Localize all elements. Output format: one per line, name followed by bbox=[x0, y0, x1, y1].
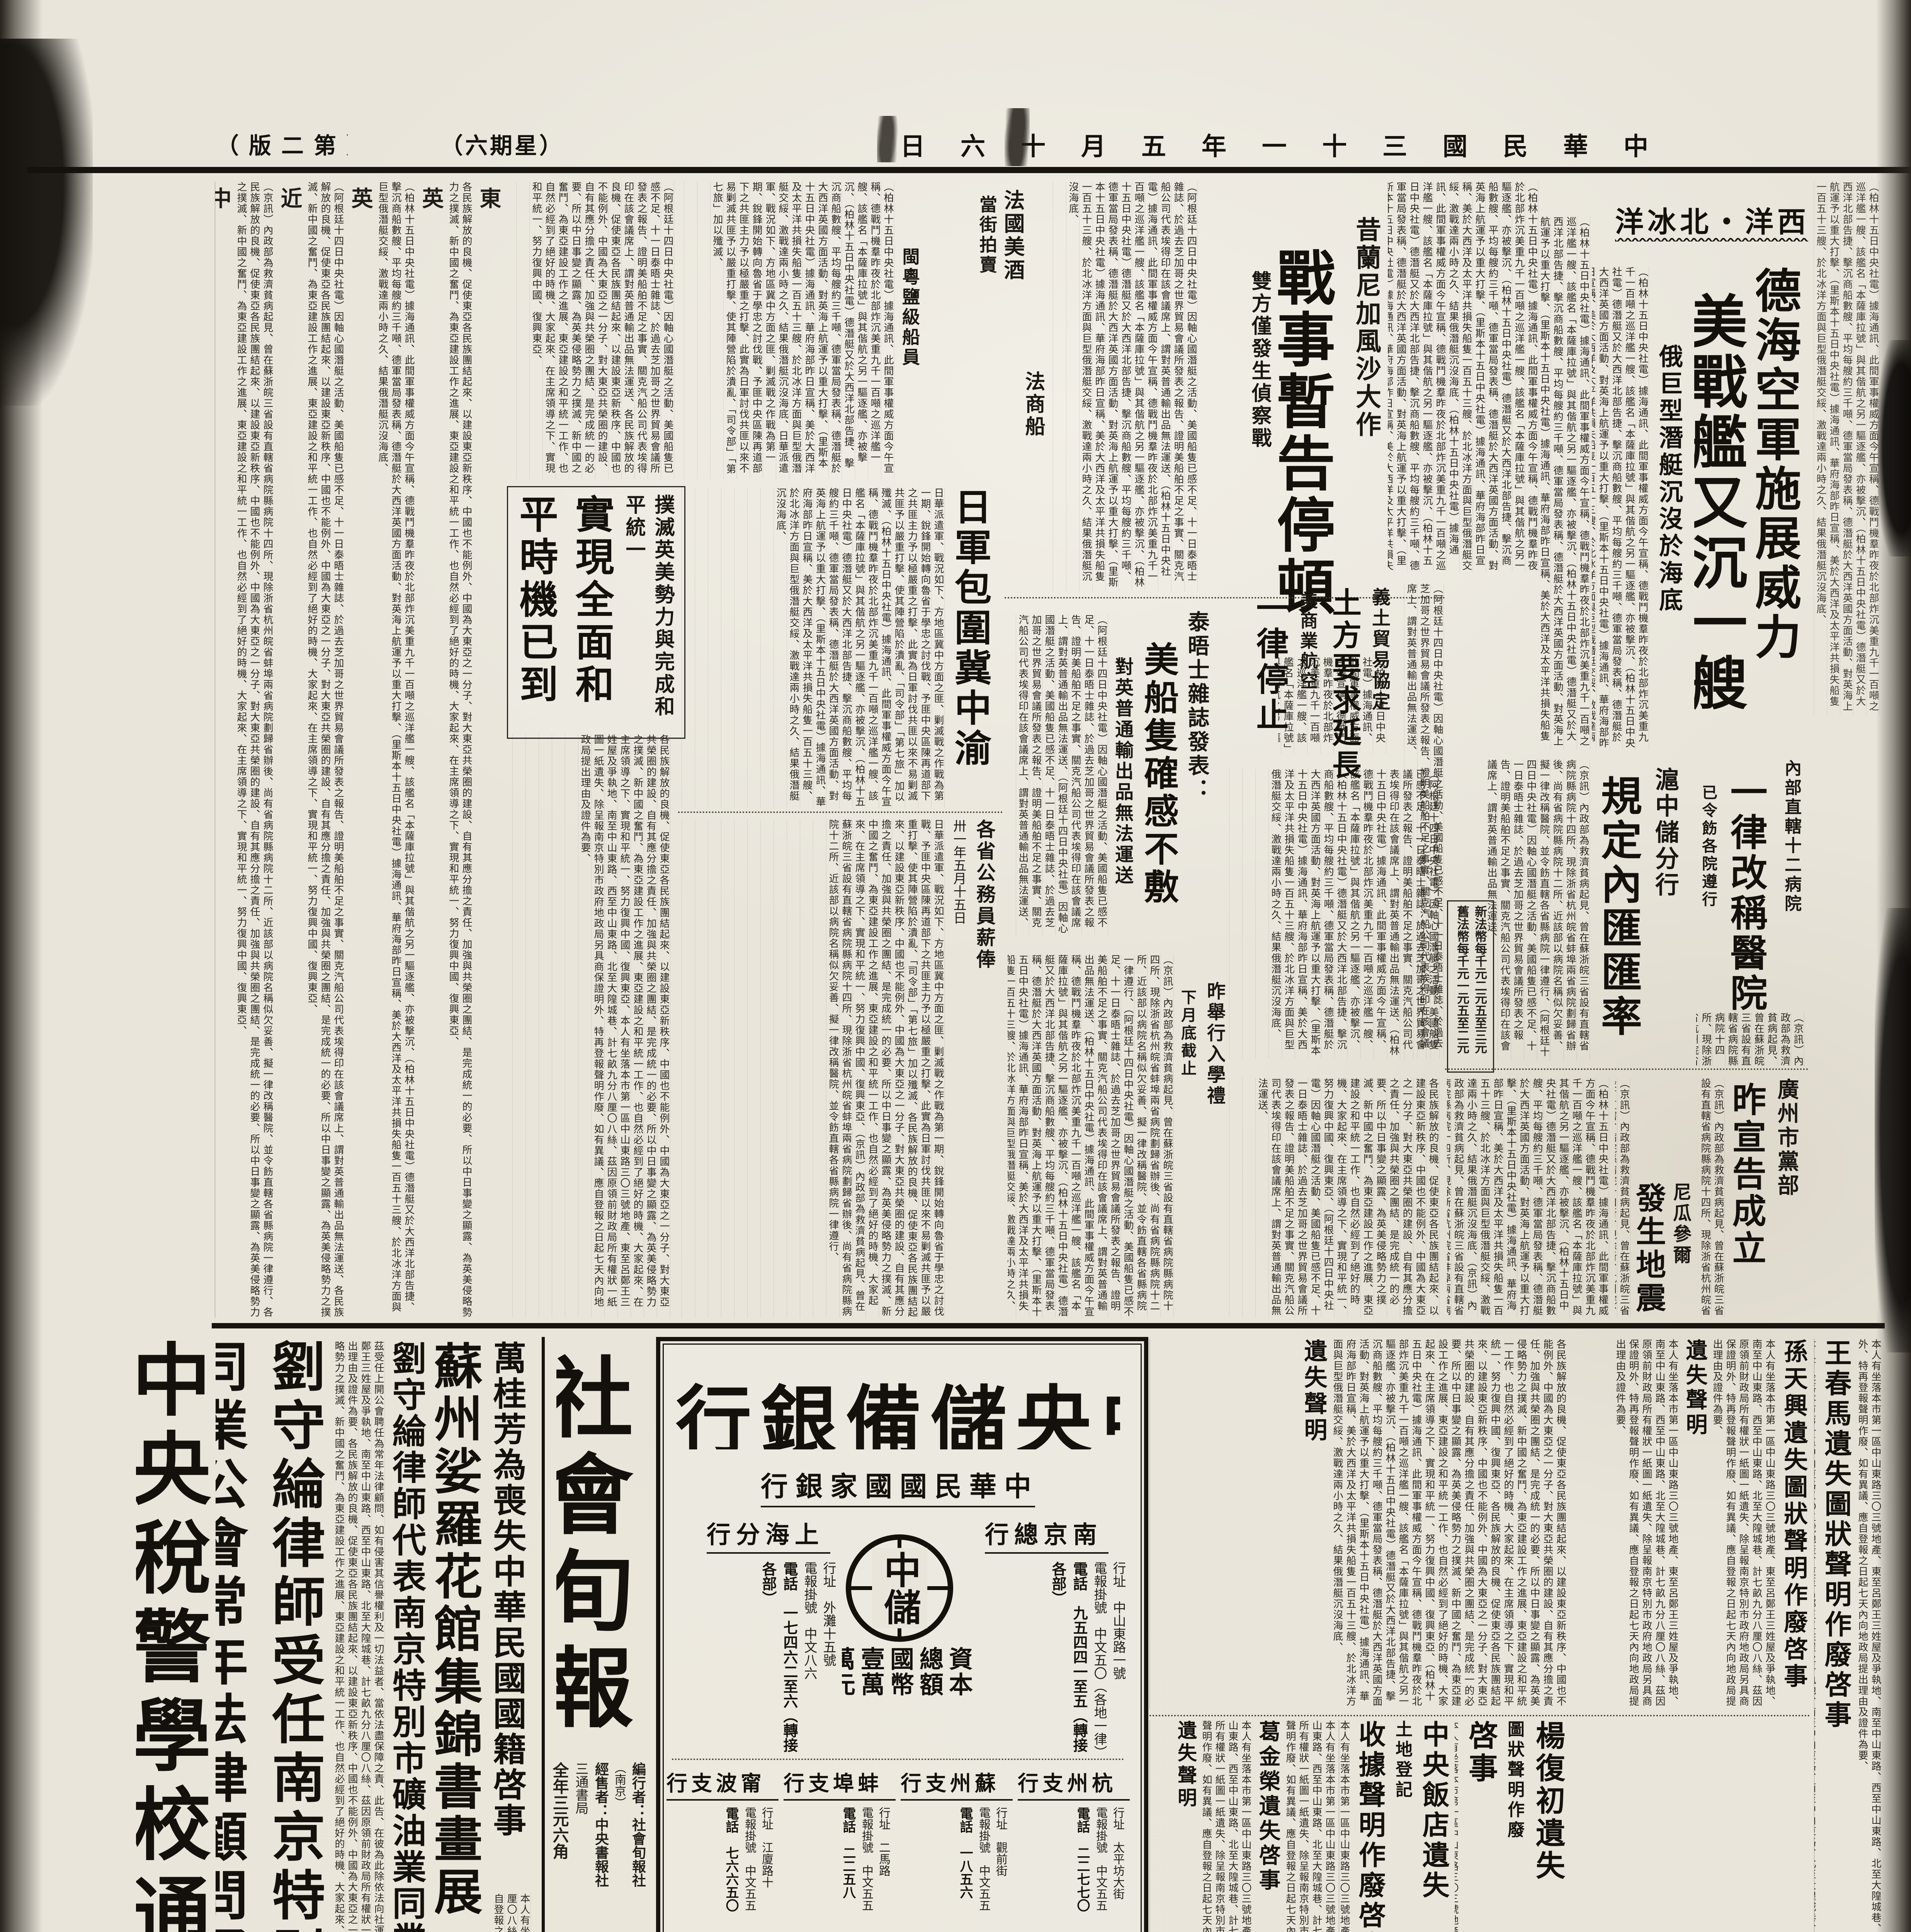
scan-edge-left bbox=[0, 0, 43, 1932]
article-remit-body: （京訊）內政部為救濟貧病起見、曾在蘇浙皖三省設有直轄省病院縣病院十四所、現除浙省… bbox=[1486, 759, 1590, 1061]
scan-streak-right bbox=[1875, 908, 1911, 1352]
article-hospital-kicker: 內部直轄十二病院 bbox=[1782, 759, 1804, 1007]
classified-yang-block: 楊復初遺失 圖狀聲明作廢 啓事 本人有坐落本市第一區中山東路三〇三號地產、東至呂… bbox=[1455, 1720, 1569, 1932]
branch-addr: 行址 太平坊大街 bbox=[1109, 1807, 1126, 1932]
ad-wan-guifang-title: 萬桂芳為喪失中華民國國籍啓事 bbox=[492, 1341, 531, 1882]
classified-body: 本人有坐落本市第一區中山東路三〇三號地產、東至呂鄭王三姓屋及爭執地、南至中山東路… bbox=[1856, 1339, 1882, 1932]
news-column: （阿根廷十四日中央社電）因軸心國潛艇之活動、美國船隻已感不足、十一日泰晤士雜誌、… bbox=[1223, 769, 1440, 1059]
bank-branch-suzhou: 行支州蘇 行址 觀前街 電報掛號 中文五五 電話 一八五六 bbox=[901, 1766, 1013, 1932]
mini-date-line: 卅一年五月十五日 bbox=[951, 819, 968, 981]
article-jizhong-headline: 日軍包圍冀中渝軍 bbox=[951, 488, 997, 808]
editorial-peace-headline: 實現全面和平時機已到 bbox=[507, 494, 619, 731]
ad-shehui-imprint: 編行者：社會旬報社 （南京） 經售者：中央書報社 三通書局 全年三元六角 bbox=[551, 1762, 648, 1932]
article-aviation-headline: 一律停止 bbox=[1255, 591, 1294, 753]
ad-shehui-xunbao: 社會旬報 編行者：社會旬報社 （南京） 經售者：中央書報社 三通書局 全年三元六… bbox=[542, 1337, 659, 1932]
bank-sh-cable: 電報掛號 中文八六 bbox=[800, 1561, 819, 1762]
branch-name: 行支埠蚌 bbox=[784, 1766, 896, 1801]
bank-seal-text: 中儲 bbox=[872, 1548, 927, 1628]
ad-suzhou-exhibition-title: 蘇州娑羅花館集錦書畫展 bbox=[435, 1341, 489, 1932]
article-ceasefire-headline: 戰事暫告停頓 bbox=[1278, 247, 1343, 645]
bank-seal-logo: 中儲 bbox=[846, 1534, 953, 1642]
mini-head-auction: 當街拍賣 bbox=[979, 195, 1000, 303]
article-trade-kicker: 義土貿易協定 bbox=[1370, 587, 1393, 753]
edition-label: （版二第） bbox=[216, 128, 348, 162]
scan-blotch-topleft bbox=[0, 39, 93, 406]
editorial-text: （柏林十五日中央社電）據海通訊、此間軍事權威方面今午宣稱、德戰鬥機羣昨夜於北部炸… bbox=[376, 182, 415, 1318]
mini-head-french-ship: 法商船 bbox=[1025, 371, 1048, 464]
classified-right-margin: 本人有坐落本市第一區中山東路三〇三號地產、東至呂鄭王三姓屋及爭執地、南至中山東路… bbox=[1814, 1339, 1882, 1932]
branch-tel: 電話 一八五六 bbox=[956, 1807, 975, 1932]
ad-wan-guifang-body: 本人有坐落本市第一區中山東路三〇三號地產、東至呂鄭王三姓屋及爭執地、南至中山東路… bbox=[492, 1893, 531, 1932]
classified-block: 孫天興遺失圖狀聲明作廢啓事 本人有坐落本市第一區中山東路三〇三號地產、東至呂鄭王… bbox=[1571, 1339, 1811, 1709]
remit-rate-old: 舊法幣每千元一元五至二元 bbox=[1454, 905, 1471, 1068]
ad-tax-police-school-title: 中央稅警學校通告 bbox=[136, 1339, 221, 1932]
ad-shehui-title: 社會旬報 bbox=[556, 1352, 645, 1747]
article-canton-headline: 昨宣告成立 bbox=[1730, 1082, 1771, 1267]
article-hospital-subhead: 已令飭各院遵行 bbox=[1699, 784, 1719, 962]
bank-sh-details: 行址 外灘十五號 電報掛號 中文八六 電話 一七四六二至六（轉接各部） bbox=[668, 1561, 838, 1762]
article-ceasefire-body: （柏林十五日中央社電）據海通訊、此間軍事權威方面今午宣稱、德戰鬥機羣昨夜於北部炸… bbox=[1388, 182, 1539, 572]
section-char: 東 bbox=[473, 182, 504, 1318]
branch-name: 行支波甯 bbox=[666, 1766, 779, 1801]
classified-subhead-yang: 圖狀聲明作廢 bbox=[1502, 1720, 1527, 1932]
ink-stamp bbox=[877, 116, 898, 162]
branch-details: 行址 觀前街 電報掛號 中文五五 電話 一八五六 bbox=[901, 1807, 1009, 1932]
classified-head-lost: 遺失聲明 bbox=[1297, 1339, 1331, 1709]
section-char: 近 bbox=[274, 182, 305, 1318]
essay-continuation-block: 各民族解放的良機、促使東亞各民族團結起來、以建設東亞新秩序、中國也不能例外、中國… bbox=[1149, 1339, 1567, 1709]
classified-head-lost: 遺失聲明 bbox=[1172, 1720, 1200, 1932]
article-times-subhead: 對英普通輸出品無法運送 bbox=[1113, 657, 1136, 896]
ad-shehui-editor2: （南京） bbox=[610, 1762, 627, 1932]
masthead-rule bbox=[27, 167, 1911, 173]
classified-head-lost: 遺失聲明 bbox=[1679, 1339, 1710, 1709]
ad-shehui-seller2: 三通書局 bbox=[571, 1762, 590, 1932]
editorial-text: （阿根廷十四日中央社電）因軸心國潛艇之活動、美國船隻已感不足、十一日泰晤士雜誌、… bbox=[305, 182, 345, 1318]
masthead-date: 日六十月五年一十三國民華中 bbox=[900, 127, 1800, 163]
ink-stamp bbox=[1005, 108, 1030, 166]
ad-liu-representative-title: 劉守綸律師代表南京特別市礦油業同業公會啓事 bbox=[388, 1341, 431, 1932]
classified-body: 本人有坐落本市第一區中山東路三〇三號地產、東至呂鄭王三姓屋及爭執地、南至中山東路… bbox=[1284, 1720, 1336, 1932]
bank-divider bbox=[672, 1759, 1124, 1760]
article-times-kicker: 泰晤士雜誌發表： bbox=[1187, 611, 1212, 850]
classified-head-hotel: 中央飯店遺失 bbox=[1415, 1720, 1454, 1932]
section-divider bbox=[678, 811, 1003, 813]
article-jizhong-body: 日華派遣軍、戰況如下、方地區冀中方面之匪、剿滅戰之作戰為第一期、銳鋒開始轉向魯省… bbox=[678, 488, 945, 808]
branch-name: 行支州蘇 bbox=[901, 1766, 1013, 1801]
classified-block: 本人有坐落本市第一區中山東路三〇三號地產、東至呂鄭王三姓屋及爭執地、南至中山東路… bbox=[1149, 1720, 1336, 1932]
article-ceasefire-kicker: 昔蘭尼加風沙大作 bbox=[1348, 216, 1385, 464]
editorial-peace-kicker: 撲滅英美勢力與完成和平統一 bbox=[619, 494, 677, 731]
bank-subtitle: 行銀家國國民華中 bbox=[761, 1465, 1035, 1507]
article-atlantic-headline2: 美戰艦又沉一艘 bbox=[1694, 292, 1755, 732]
classified-body: 本人有坐落本市第一區中山東路三〇三號地產、東至呂鄭王三姓屋及爭執地、南至中山東路… bbox=[1710, 1339, 1776, 1709]
ad-shehui-editor: 編行者：社會旬報社 bbox=[627, 1762, 648, 1932]
bank-branch-ningbo: 行支波甯 行址 江廈路十 電報掛號 中文五五 電話 七六六五〇 bbox=[666, 1766, 779, 1932]
page-margin-column: （柏林十五日中央社電）據海通訊、此間軍事權威方面今午宣稱、德戰鬥機羣昨夜於北部炸… bbox=[1812, 182, 1880, 715]
classified-body: 本人有坐落本市第一區中山東路三〇三號地產、東至呂鄭王三姓屋及爭執地、南至中山東路… bbox=[1613, 1339, 1679, 1709]
branch-cable: 電報掛號 中文五五 bbox=[858, 1807, 875, 1932]
section-char: 英 bbox=[345, 182, 376, 1318]
classified-body: 本人有坐落本市第一區中山東路三〇三號地產、東至呂鄭王三姓屋及爭執地、南至中山東路… bbox=[1814, 1339, 1817, 1932]
ad-shehui-price: 全年三元六角 bbox=[551, 1762, 571, 1932]
mini-head-ship-crew: 閩粵鹽級船員 bbox=[901, 247, 923, 410]
classified-head-yang-end: 啓事 bbox=[1459, 1720, 1502, 1932]
news-column: （京訊）內政部為救濟貧病起見、曾在蘇浙皖三省設有直轄省病院縣病院十四所、現除浙省… bbox=[1615, 1078, 1630, 1318]
branch-cable: 電報掛號 中文五五 bbox=[975, 1807, 992, 1932]
editorial-text: 各民族解放的良機、促使東亞各民族團結起來、以建設東亞新秩序、中國也不能例外、中國… bbox=[447, 182, 473, 1318]
article-hospital-body: （京訊）內政部為救濟貧病起見、曾在蘇浙皖三省設有直轄省病院縣病院十四所、現除浙省… bbox=[1696, 1012, 1804, 1066]
branch-tel: 電話 二二五八 bbox=[839, 1807, 858, 1932]
editorial-left-strip: 東 各民族解放的良機、促使東亞各民族團結起來、以建設東亞新秩序、中國也不能例外、… bbox=[215, 182, 504, 1318]
bank-branches-row: 行支州杭 行址 太平坊大街 電報掛號 中文五五 電話 二二七七〇 行支州蘇 行址… bbox=[664, 1766, 1134, 1932]
remit-rate-new: 新法幣每千元二元五至三元 bbox=[1471, 905, 1489, 1068]
bank-hq-tel: 電話 九五四四一至五（轉接各部） bbox=[1047, 1561, 1090, 1762]
branch-name: 行支州杭 bbox=[1018, 1766, 1130, 1801]
section-divider bbox=[1445, 1068, 1808, 1070]
branch-addr: 行址 二馬路 bbox=[875, 1807, 892, 1932]
news-column: （阿根廷十四日中央社電）因軸心國潛艇之活動、美國船隻已感不足、十一日泰晤士雜誌、… bbox=[1051, 182, 1198, 591]
branch-cable: 電報掛號 中文五五 bbox=[1092, 1807, 1109, 1932]
bank-branch-bengbu: 行支埠蚌 行址 二馬路 電報掛號 中文五五 電話 二二五八 bbox=[784, 1766, 896, 1932]
classified-head-sun: 孫天興遺失圖狀聲明作廢啓事 bbox=[1776, 1339, 1811, 1709]
news-column: （阿根廷十四日中央社電）因軸心國潛艇之活動、美國船隻已感不足、十一日泰晤士雜誌、… bbox=[508, 182, 674, 479]
classified-body: 本人有坐落本市第一區中山東路三〇三號地產、東至呂鄭王三姓屋及爭執地、南至中山東路… bbox=[1200, 1720, 1252, 1932]
essay-text: 各民族解放的良機、促使東亞各民族團結起來、以建設東亞新秩序、中國也不能例外、中國… bbox=[1331, 1339, 1567, 1709]
branch-details: 行址 二馬路 電報掛號 中文五五 電話 二二五八 bbox=[784, 1807, 892, 1932]
editorial-peace-box: 撲滅英美勢力與完成和平統一 實現全面和平時機已到 許竹園 bbox=[507, 486, 685, 739]
article-canton-kicker: 廣州市黨部 bbox=[1777, 1078, 1802, 1225]
article-atlantic-body: （柏林十五日中央社電）據海通訊、此間軍事權威方面今午宣稱、德戰鬥機羣昨夜於北部炸… bbox=[1541, 216, 1590, 750]
branch-cable: 電報掛號 中文五五 bbox=[741, 1807, 758, 1932]
scan-streak-right bbox=[1878, 340, 1911, 556]
section-char: 英 bbox=[415, 182, 447, 1318]
article-remit-headline: 規定內匯匯率 bbox=[1595, 775, 1647, 1053]
article-atlantic-subhead: 俄巨型潛艇沉沒於海底 bbox=[1651, 344, 1686, 645]
branch-tel: 電話 七六六五〇 bbox=[722, 1807, 741, 1932]
mini-head-french-wine: 法國美酒 bbox=[1004, 189, 1028, 313]
article-atlantic-headline1: 德海空軍施展威力 bbox=[1756, 267, 1807, 692]
article-times-body: （阿根廷十四日中央社電）因軸心國潛艇之活動、美國船隻已感不足、十一日泰晤士雜誌、… bbox=[1008, 614, 1108, 935]
classified-head-ge: 葛金榮遺失啓事 bbox=[1252, 1720, 1284, 1932]
ads-band-rule bbox=[212, 1323, 1885, 1328]
classified-head-hotel-2: 收據聲明作廢啓事 bbox=[1351, 1720, 1390, 1932]
section-divider bbox=[1149, 1715, 1810, 1716]
article-ceasefire-subhead: 雙方僅發生偵察戰 bbox=[1250, 270, 1274, 587]
bank-capital: 資本總額國幣壹萬萬元 bbox=[842, 1646, 973, 1708]
article-remit-kicker: 滬中儲分行 bbox=[1653, 767, 1682, 929]
section-char: 中 bbox=[215, 182, 235, 1318]
classified-head-wang-chunma: 王春馬遺失圖狀聲明作廢啓事 bbox=[1817, 1339, 1856, 1932]
article-hospital-headline: 一律改稱醫院 bbox=[1726, 773, 1773, 1020]
bank-title: 行銀備儲央中 bbox=[676, 1361, 1120, 1449]
bank-hq-addr: 行址 中山東路一號 bbox=[1109, 1561, 1128, 1762]
bank-hq-name: 行總京南 bbox=[985, 1515, 1109, 1554]
classified-subhead-hotel: 土地登記 bbox=[1390, 1720, 1415, 1932]
ad-liu-counsel-notice-body: 茲受任上開公會聘任為常年法律顧問、如有侵害其信譽權利及一切法益者、當依法盡保障之… bbox=[334, 1341, 385, 1932]
news-column: （柏林十五日中央社電）據海通訊、此間軍事權威方面今午宣稱、德戰鬥機羣昨夜於北部炸… bbox=[1447, 1078, 1609, 1318]
bank-sh-tel: 電話 一七四六二至六（轉接各部） bbox=[758, 1561, 800, 1762]
bank-branch-hangzhou: 行支州杭 行址 太平坊大街 電報掛號 中文五五 電話 二二七七〇 bbox=[1018, 1766, 1130, 1932]
mini-head-deadline: 下月底截止 bbox=[1179, 989, 1199, 1105]
branch-addr: 行址 觀前街 bbox=[992, 1807, 1009, 1932]
editorial-text: （京訊）內政部為救濟貧病起見、曾在蘇浙皖三省設有直轄省病院縣病院十四所、現除浙省… bbox=[235, 182, 274, 1318]
classified-head-yang: 楊復初遺失 bbox=[1527, 1720, 1569, 1932]
ad-central-reserve-bank: 行銀備儲央中 行銀家國國民華中 行總京南 行址 中山東路一號 電報掛號 中文五〇… bbox=[656, 1337, 1148, 1932]
branch-details: 行址 江廈路十 電報掛號 中文五五 電話 七六六五〇 bbox=[666, 1807, 775, 1932]
article-atlantic-kicker: 洋冰北・洋西大 bbox=[1615, 199, 1808, 241]
bank-branch-shanghai: 行分海上 行址 外灘十五號 電報掛號 中文八六 電話 一七四六二至六（轉接各部） bbox=[668, 1515, 838, 1755]
news-column: 日華派遣軍、戰況如下、方地區冀中方面之匪、剿滅戰之作戰為第一期、銳鋒開始轉向魯省… bbox=[678, 819, 945, 1318]
news-column: 各民族解放的良機、促使東亞各民族團結起來、以建設東亞新秩序、中國也不能例外、中國… bbox=[1223, 1078, 1440, 1318]
bank-sh-addr: 行址 外灘十五號 bbox=[819, 1561, 838, 1762]
ad-shehui-seller: 經售者：中央書報社 bbox=[590, 1762, 610, 1932]
bank-sh-name: 行分海上 bbox=[707, 1515, 830, 1554]
newspaper-page: （版二第） （六期星） 日六十月五年一十三國民華中 洋冰北・洋西大 德海空軍施展… bbox=[0, 0, 1911, 1932]
article-atlantic-body: （柏林十五日中央社電）據海通訊、此間軍事權威方面今午宣稱、德戰鬥機羣昨夜於北部炸… bbox=[1592, 267, 1649, 750]
article-quake-headline: 發生地震 bbox=[1634, 1182, 1670, 1318]
classified-body: 本人有坐落本市第一區中山東路三〇三號地產、東至呂鄭王三姓屋及爭執地、南至中山東路… bbox=[1339, 1720, 1351, 1932]
news-column: （柏林十五日中央社電）據海通訊、此間軍事權威方面今午宣稱、德戰鬥機羣昨夜於北部炸… bbox=[678, 182, 894, 479]
classified-hotel-block: 中央飯店遺失 土地登記 收據聲明作廢啓事 本人有坐落本市第一區中山東路三〇三號地… bbox=[1339, 1720, 1454, 1932]
editorial-peace-byline: 許竹園 bbox=[507, 494, 507, 731]
bank-hq-cable: 電報掛號 中文五〇（各地一律） bbox=[1090, 1561, 1109, 1762]
article-quake-kicker: 尼瓜參爾 bbox=[1673, 1182, 1694, 1298]
mini-head-salary: 各省公務員薪俸 bbox=[974, 819, 998, 997]
branch-details: 行址 太平坊大街 電報掛號 中文五五 電話 二二七七〇 bbox=[1018, 1807, 1126, 1932]
branch-tel: 電話 二二七七〇 bbox=[1073, 1807, 1092, 1932]
news-column: 各民族解放的良機、促使東亞各民族團結起來、以建設東亞新秩序、中國也不能例外、中國… bbox=[508, 734, 670, 1318]
ad-liu-counsel-notice-title: 劉守綸律師受任南京特別市礦油業同業公會常年法律顧問通告 bbox=[216, 1339, 332, 1932]
weekday-label: （六期星） bbox=[440, 128, 556, 162]
classified-body: 本人有坐落本市第一區中山東路三〇三號地產、東至呂鄭王三姓屋及爭執地、南至中山東路… bbox=[1455, 1720, 1459, 1932]
remit-rate-box: 新法幣每千元二元五至三元 舊法幣每千元一元五至二元 bbox=[1447, 900, 1494, 1073]
article-times-headline: 美船隻確感不敷 bbox=[1143, 641, 1183, 935]
article-canton-body: （京訊）內政部為救濟貧病起見、曾在蘇浙皖三省設有直轄省病院縣病院十四所、現除浙省… bbox=[1699, 1078, 1725, 1318]
news-column: （京訊）內政部為救濟貧病起見、曾在蘇浙皖三省設有直轄省病院縣病院十四所、現除浙省… bbox=[1008, 954, 1174, 1318]
article-aviation-kicker: 美商業航空 bbox=[1298, 591, 1321, 730]
branch-addr: 行址 江廈路十 bbox=[758, 1807, 775, 1932]
